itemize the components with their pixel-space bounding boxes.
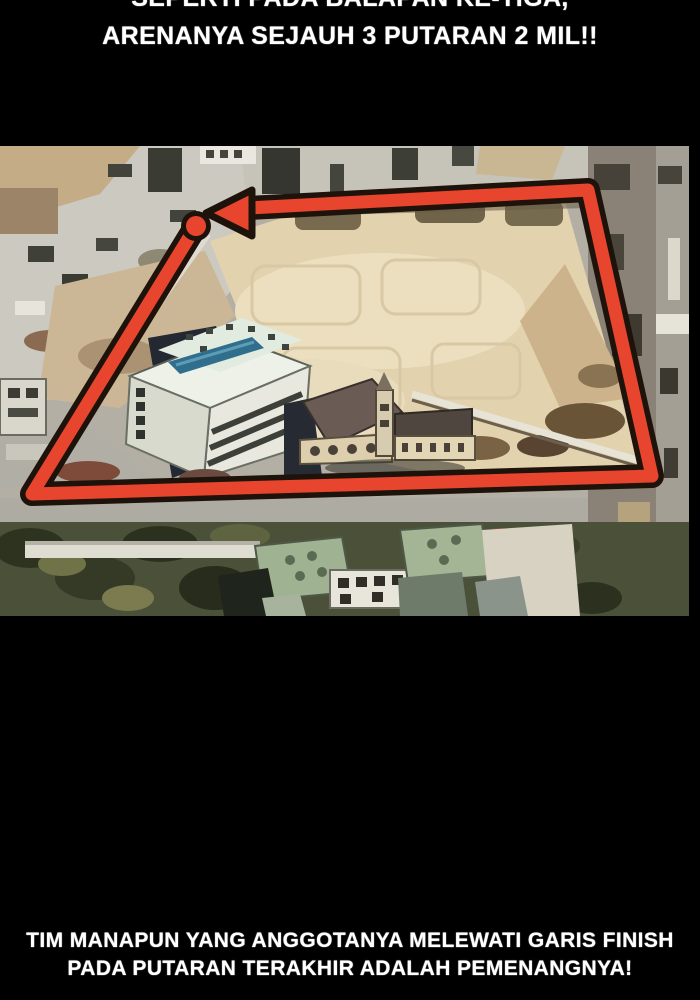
bushes bbox=[56, 461, 120, 483]
aerial-photo bbox=[0, 146, 689, 616]
comic-page: SEPERTI PADA BALAPAN KE-TIGA, ARENANYA S… bbox=[0, 0, 700, 1000]
top-caption-line2: ARENANYA SEJAUH 3 PUTARAN 2 MIL!! bbox=[0, 22, 700, 51]
route-start-dot bbox=[186, 216, 206, 236]
top-caption-line1: SEPERTI PADA BALAPAN KE-TIGA, bbox=[0, 0, 700, 13]
bottom-caption-line1: TIM MANAPUN YANG ANGGOTANYA MELEWATI GAR… bbox=[0, 929, 700, 953]
bottom-caption-line2: PADA PUTARAN TERAKHIR ADALAH PEMENANGNYA… bbox=[0, 957, 700, 981]
aerial-photo-panel bbox=[0, 146, 689, 616]
